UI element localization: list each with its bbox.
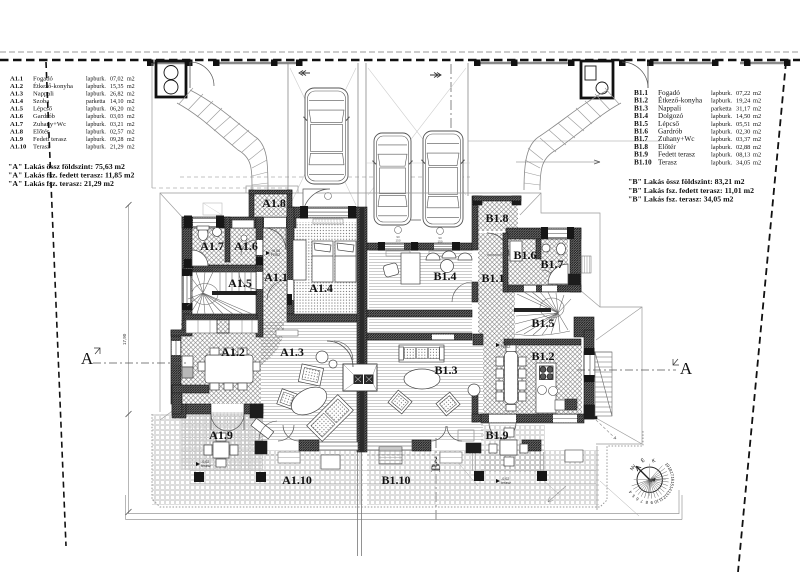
svg-text:A1.4: A1.4 bbox=[10, 98, 24, 105]
svg-text:m2: m2 bbox=[753, 136, 761, 143]
svg-text:21,29: 21,29 bbox=[110, 145, 124, 151]
svg-text:34,05: 34,05 bbox=[736, 159, 750, 166]
svg-text:m2: m2 bbox=[127, 129, 135, 135]
svg-text:07,02: 07,02 bbox=[110, 77, 124, 83]
svg-text:m2: m2 bbox=[127, 137, 135, 143]
svg-text:lapburk.: lapburk. bbox=[711, 159, 733, 166]
svg-text:A1.1: A1.1 bbox=[10, 76, 23, 83]
svg-text:07,22: 07,22 bbox=[736, 90, 750, 97]
svg-text:B1.7: B1.7 bbox=[540, 257, 563, 271]
svg-text:m2: m2 bbox=[753, 90, 761, 97]
svg-text:lapburk.: lapburk. bbox=[86, 92, 106, 98]
svg-text:lapburk.: lapburk. bbox=[711, 113, 733, 120]
svg-text:A1.3: A1.3 bbox=[280, 345, 304, 359]
svg-text:parketta: parketta bbox=[86, 99, 106, 105]
svg-text:lapburk.: lapburk. bbox=[711, 152, 733, 159]
svg-text:B1.5: B1.5 bbox=[531, 316, 554, 330]
svg-text:03,03: 03,03 bbox=[110, 114, 124, 120]
svg-text:m2: m2 bbox=[127, 92, 135, 98]
svg-text:lapburk.: lapburk. bbox=[711, 98, 733, 105]
svg-text:lapburk.: lapburk. bbox=[86, 122, 106, 128]
svg-text:lapburk.: lapburk. bbox=[711, 90, 733, 97]
svg-text:m2: m2 bbox=[127, 145, 135, 151]
svg-text:Nappali: Nappali bbox=[33, 91, 54, 98]
svg-text:26,82: 26,82 bbox=[110, 92, 124, 98]
svg-text:Terasz: Terasz bbox=[658, 157, 678, 166]
svg-text:lapburk.: lapburk. bbox=[86, 114, 106, 120]
svg-text:Lépcső: Lépcső bbox=[33, 106, 53, 113]
svg-text:A1.9: A1.9 bbox=[10, 136, 24, 143]
svg-text:lapburk.: lapburk. bbox=[86, 137, 106, 143]
svg-text:m2: m2 bbox=[753, 98, 761, 105]
svg-text:A1.4: A1.4 bbox=[309, 281, 333, 295]
svg-text:19,24: 19,24 bbox=[736, 98, 751, 105]
svg-text:06,20: 06,20 bbox=[110, 107, 124, 113]
svg-text:14,10: 14,10 bbox=[110, 99, 124, 105]
svg-text:B1.8: B1.8 bbox=[485, 211, 508, 225]
svg-text:m2: m2 bbox=[127, 99, 135, 105]
svg-text:FDSZ: FDSZ bbox=[271, 253, 281, 257]
svg-text:lapburk.: lapburk. bbox=[711, 144, 733, 151]
svg-text:B1.2: B1.2 bbox=[531, 349, 554, 363]
svg-text:Előtér: Előtér bbox=[33, 128, 50, 135]
svg-text:terasz: terasz bbox=[201, 464, 211, 468]
svg-text:m2: m2 bbox=[127, 107, 135, 113]
svg-text:B1.10: B1.10 bbox=[634, 157, 652, 166]
svg-text:A1.10: A1.10 bbox=[282, 473, 312, 487]
svg-text:Fogadó: Fogadó bbox=[33, 76, 53, 83]
svg-text:m2: m2 bbox=[753, 105, 761, 112]
svg-text:terasz: terasz bbox=[501, 481, 511, 485]
svg-text:08,13: 08,13 bbox=[736, 152, 750, 159]
svg-text:A1.6: A1.6 bbox=[10, 113, 24, 120]
svg-text:lapburk.: lapburk. bbox=[711, 136, 733, 143]
svg-text:17,90: 17,90 bbox=[122, 333, 127, 345]
svg-text:A1.5: A1.5 bbox=[10, 106, 24, 113]
svg-text:m2: m2 bbox=[753, 113, 761, 120]
svg-text:m2: m2 bbox=[127, 114, 135, 120]
svg-text:31,17: 31,17 bbox=[736, 105, 751, 112]
svg-text:Szoba: Szoba bbox=[33, 98, 49, 105]
svg-text:"B" Lakás össz földszint: 83,2: "B" Lakás össz földszint: 83,21 m2 bbox=[628, 177, 745, 186]
svg-text:14,50: 14,50 bbox=[736, 113, 750, 120]
svg-text:150: 150 bbox=[395, 239, 400, 243]
svg-text:B1.10: B1.10 bbox=[381, 473, 410, 487]
svg-text:m2: m2 bbox=[753, 152, 761, 159]
svg-text:m2: m2 bbox=[127, 84, 135, 90]
svg-text:lapburk.: lapburk. bbox=[711, 121, 733, 128]
svg-text:A1.8: A1.8 bbox=[10, 128, 24, 135]
svg-text:02,30: 02,30 bbox=[736, 129, 750, 136]
svg-text:lapburk.: lapburk. bbox=[86, 107, 106, 113]
svg-text:A: A bbox=[81, 349, 94, 368]
svg-text:lapburk.: lapburk. bbox=[86, 84, 106, 90]
svg-text:Fedett terasz: Fedett terasz bbox=[33, 136, 67, 143]
svg-text:m2: m2 bbox=[127, 77, 135, 83]
svg-text:B1.3: B1.3 bbox=[434, 363, 457, 377]
svg-text:"A" Lakás fsz. terasz: 21,29 m: "A" Lakás fsz. terasz: 21,29 m2 bbox=[8, 179, 114, 188]
svg-text:B1.6: B1.6 bbox=[513, 248, 536, 262]
svg-text:"B" Lakás fsz. terasz: 34,05 m: "B" Lakás fsz. terasz: 34,05 m2 bbox=[628, 195, 734, 204]
svg-text:lapburk.: lapburk. bbox=[711, 129, 733, 136]
svg-text:m2: m2 bbox=[753, 121, 761, 128]
svg-text:03,37: 03,37 bbox=[736, 136, 751, 143]
svg-text:parketta: parketta bbox=[711, 105, 732, 112]
svg-text:03,21: 03,21 bbox=[110, 122, 124, 128]
svg-text:A1.6: A1.6 bbox=[234, 239, 258, 253]
svg-text:02,57: 02,57 bbox=[110, 129, 124, 135]
svg-text:m2: m2 bbox=[753, 144, 761, 151]
svg-text:A: A bbox=[680, 359, 693, 378]
svg-text:lapburk.: lapburk. bbox=[86, 145, 106, 151]
svg-text:A1.2: A1.2 bbox=[221, 345, 245, 359]
svg-text:Étkező-konyha: Étkező-konyha bbox=[33, 82, 73, 90]
svg-text:A1.10: A1.10 bbox=[10, 144, 27, 151]
svg-text:A1.1: A1.1 bbox=[264, 270, 288, 284]
svg-text:m2: m2 bbox=[127, 122, 135, 128]
svg-text:lapburk.: lapburk. bbox=[86, 77, 106, 83]
svg-text:02,88: 02,88 bbox=[736, 144, 750, 151]
svg-text:A1.7: A1.7 bbox=[200, 239, 224, 253]
svg-text:15,35: 15,35 bbox=[110, 84, 124, 90]
svg-text:Terasz: Terasz bbox=[33, 144, 50, 151]
svg-text:A1.2: A1.2 bbox=[10, 83, 24, 90]
svg-text:05,51: 05,51 bbox=[736, 121, 750, 128]
svg-text:A1.7: A1.7 bbox=[10, 121, 24, 128]
svg-text:Zuhany+Wc: Zuhany+Wc bbox=[33, 121, 66, 128]
svg-text:09,28: 09,28 bbox=[110, 137, 124, 143]
svg-text:FDSZ: FDSZ bbox=[501, 345, 511, 349]
svg-text:m2: m2 bbox=[753, 129, 761, 136]
svg-text:B1.4: B1.4 bbox=[433, 269, 456, 283]
svg-text:A1.9: A1.9 bbox=[209, 428, 233, 442]
svg-text:lapburk.: lapburk. bbox=[86, 129, 106, 135]
svg-text:A1.8: A1.8 bbox=[262, 196, 286, 210]
svg-text:B1.9: B1.9 bbox=[485, 428, 508, 442]
svg-text:A1.3: A1.3 bbox=[10, 91, 24, 98]
svg-text:Gardrób: Gardrób bbox=[33, 113, 56, 120]
svg-text:A1.5: A1.5 bbox=[228, 276, 252, 290]
svg-text:B1.1: B1.1 bbox=[481, 271, 504, 285]
svg-text:m2: m2 bbox=[753, 159, 761, 166]
